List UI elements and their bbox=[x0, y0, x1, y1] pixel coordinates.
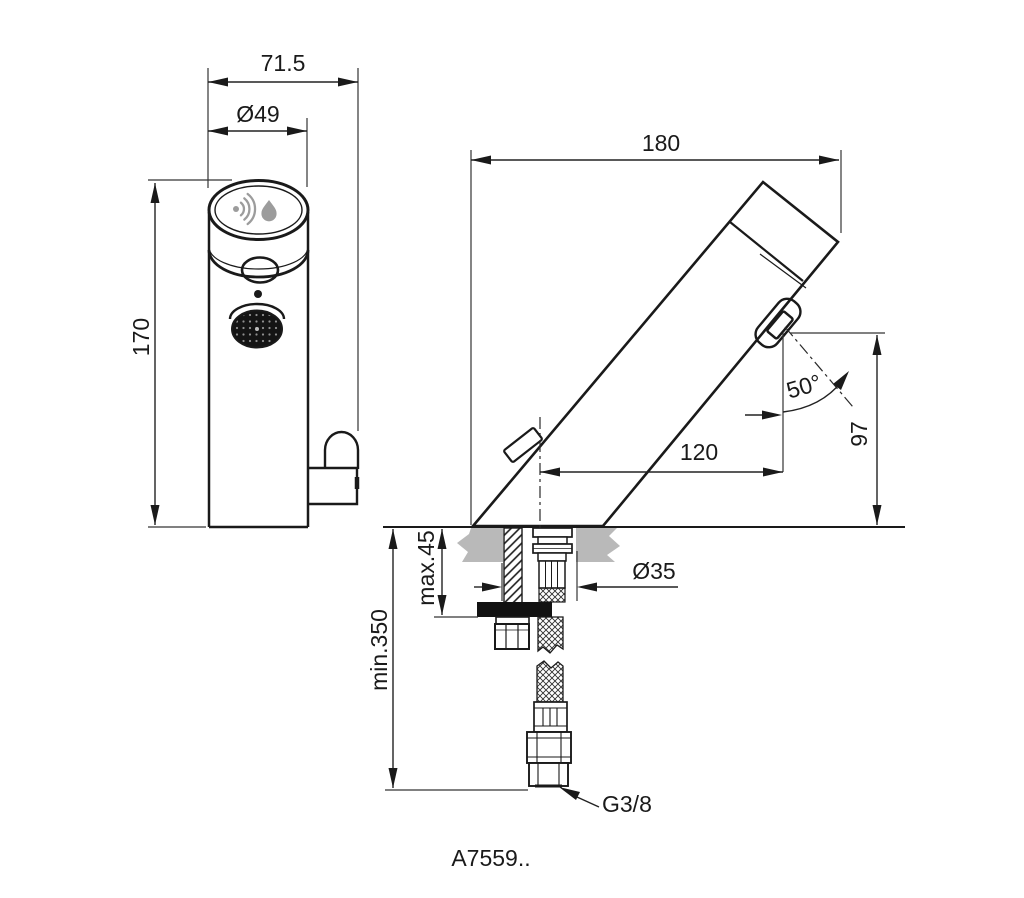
outlet-lever bbox=[767, 311, 794, 339]
sensor-icon bbox=[233, 194, 277, 224]
dim-spout-angle: 50° bbox=[745, 369, 849, 419]
dim-label-hose-clearance: min.350 bbox=[366, 609, 392, 691]
spout-outlet-pod bbox=[751, 294, 805, 351]
front-view-extension-lines bbox=[148, 68, 358, 527]
faucet-front-outline bbox=[209, 181, 308, 528]
water-drop-icon bbox=[261, 200, 276, 221]
side-view: 180 50° 120 97 max.45 bbox=[366, 130, 905, 817]
front-view-side-handle bbox=[308, 432, 358, 504]
dim-front-overall-width: 71.5 bbox=[208, 50, 358, 87]
countertop-gray-right bbox=[576, 528, 620, 562]
side-view-extension-lines bbox=[385, 150, 885, 790]
sensor-cap-bottom-seam bbox=[209, 250, 308, 277]
dim-hose-clearance: min.350 bbox=[366, 529, 398, 788]
hose-mid-section bbox=[538, 617, 563, 653]
dim-label-front-height: 170 bbox=[128, 318, 154, 356]
dim-label-outlet-height: 97 bbox=[846, 421, 872, 447]
connector-end-piece bbox=[529, 763, 568, 786]
dim-outlet-height: 97 bbox=[846, 335, 882, 525]
countertop-gray-left bbox=[457, 528, 503, 562]
base-lever bbox=[503, 427, 542, 462]
supply-hose-upper bbox=[533, 528, 572, 602]
sensor-led-dot bbox=[254, 290, 262, 298]
dim-label-body-diameter: Ø49 bbox=[236, 101, 279, 127]
dim-label-deck-thickness: max.45 bbox=[413, 530, 439, 605]
countertop bbox=[383, 527, 905, 562]
dim-label-spout-reach: 120 bbox=[680, 439, 718, 465]
callout-supply-connection: G3/8 bbox=[559, 787, 652, 817]
sensor-cap-seam bbox=[730, 222, 803, 281]
hose-collar bbox=[534, 702, 567, 732]
dim-label-spout-angle: 50° bbox=[783, 369, 824, 404]
dim-label-depth: 180 bbox=[642, 130, 680, 156]
dim-front-body-diameter: Ø49 bbox=[208, 101, 307, 136]
hose-lower-section bbox=[537, 661, 563, 702]
technical-drawing-page: 71.5 Ø49 170 bbox=[0, 0, 1024, 898]
connector-hex-fitting bbox=[527, 732, 571, 763]
faucet-dimension-drawing: 71.5 Ø49 170 bbox=[0, 0, 1024, 898]
mounting-hardware bbox=[477, 528, 572, 786]
label-supply-connection: G3/8 bbox=[602, 791, 652, 817]
front-view: 71.5 Ø49 170 bbox=[128, 50, 358, 527]
signal-dot-icon bbox=[233, 206, 239, 212]
dim-side-overall-depth: 180 bbox=[471, 130, 839, 165]
dim-deck-thickness: max.45 bbox=[413, 529, 447, 615]
mounting-plate bbox=[477, 602, 552, 617]
dim-label-hole-diameter: Ø35 bbox=[632, 558, 675, 584]
threaded-rod bbox=[504, 528, 522, 603]
spout-joint-ring bbox=[242, 258, 278, 283]
plate-lip bbox=[496, 617, 529, 624]
dim-label-front-width: 71.5 bbox=[261, 50, 306, 76]
signal-waves-icon bbox=[241, 203, 244, 216]
product-code: A7559.. bbox=[451, 845, 530, 871]
dim-front-overall-height: 170 bbox=[128, 183, 160, 525]
fixing-nut bbox=[495, 624, 529, 649]
dim-spout-reach: 120 bbox=[540, 439, 783, 477]
sensor-cap-top-face bbox=[209, 181, 308, 240]
